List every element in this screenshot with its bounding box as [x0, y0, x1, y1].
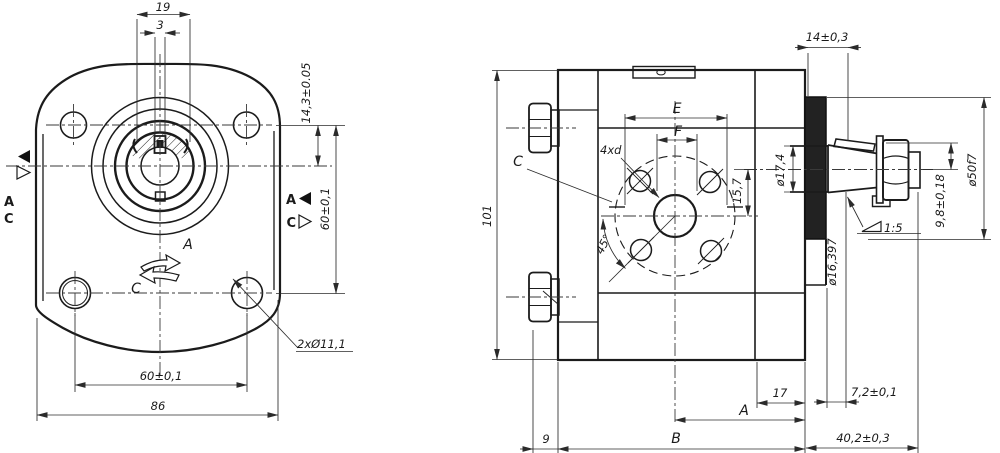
dim-b: B	[671, 431, 681, 447]
view-label-c: C	[513, 154, 523, 170]
gear-pump-drawing: 19 3 14,3±0.05 60±0,1 60±0,1 86 2xØ11,1 …	[0, 0, 1000, 453]
dim-14-3: 14,3±0.05	[299, 63, 313, 124]
rotation-label-a: A	[182, 237, 193, 253]
port-label-a-left: A	[4, 195, 14, 210]
dim-101: 101	[480, 205, 494, 227]
dim-9: 9	[542, 432, 549, 446]
dim-9-8: 9,8±0,18	[933, 174, 947, 228]
taper-ratio: 1:5	[884, 221, 903, 235]
dim-f: F	[674, 124, 683, 140]
dim-3: 3	[156, 18, 163, 32]
port-label-c-left: C	[4, 212, 14, 227]
dim-e: E	[673, 101, 682, 117]
dim-86: 86	[151, 399, 166, 413]
dim-d17-4: ø17,4	[773, 154, 787, 188]
port-label-c-right: C	[286, 216, 296, 231]
label-2x-d11: 2xØ11,1	[297, 337, 346, 351]
dim-60-horizontal: 60±0,1	[140, 369, 183, 383]
dim-60-vertical: 60±0,1	[318, 188, 332, 231]
dim-19: 19	[156, 0, 171, 14]
label-4xd: 4xd	[600, 143, 622, 157]
dim-40-2: 40,2±0,3	[836, 431, 890, 445]
rotation-label-c: C	[131, 281, 141, 297]
dim-7-2: 7,2±0,1	[851, 385, 897, 399]
port-label-a-right: A	[286, 193, 296, 208]
drawing-canvas: 19 3 14,3±0.05 60±0,1 60±0,1 86 2xØ11,1 …	[0, 0, 1000, 453]
dim-14: 14±0,3	[806, 30, 849, 44]
dim-15-7: 15,7	[730, 178, 744, 204]
dim-17: 17	[773, 386, 788, 400]
dim-a: A	[738, 403, 749, 419]
mounting-flange-section	[805, 97, 826, 239]
dim-d50f7: ø50f7	[965, 153, 979, 188]
dim-d16-397: ø16,397	[825, 238, 839, 287]
